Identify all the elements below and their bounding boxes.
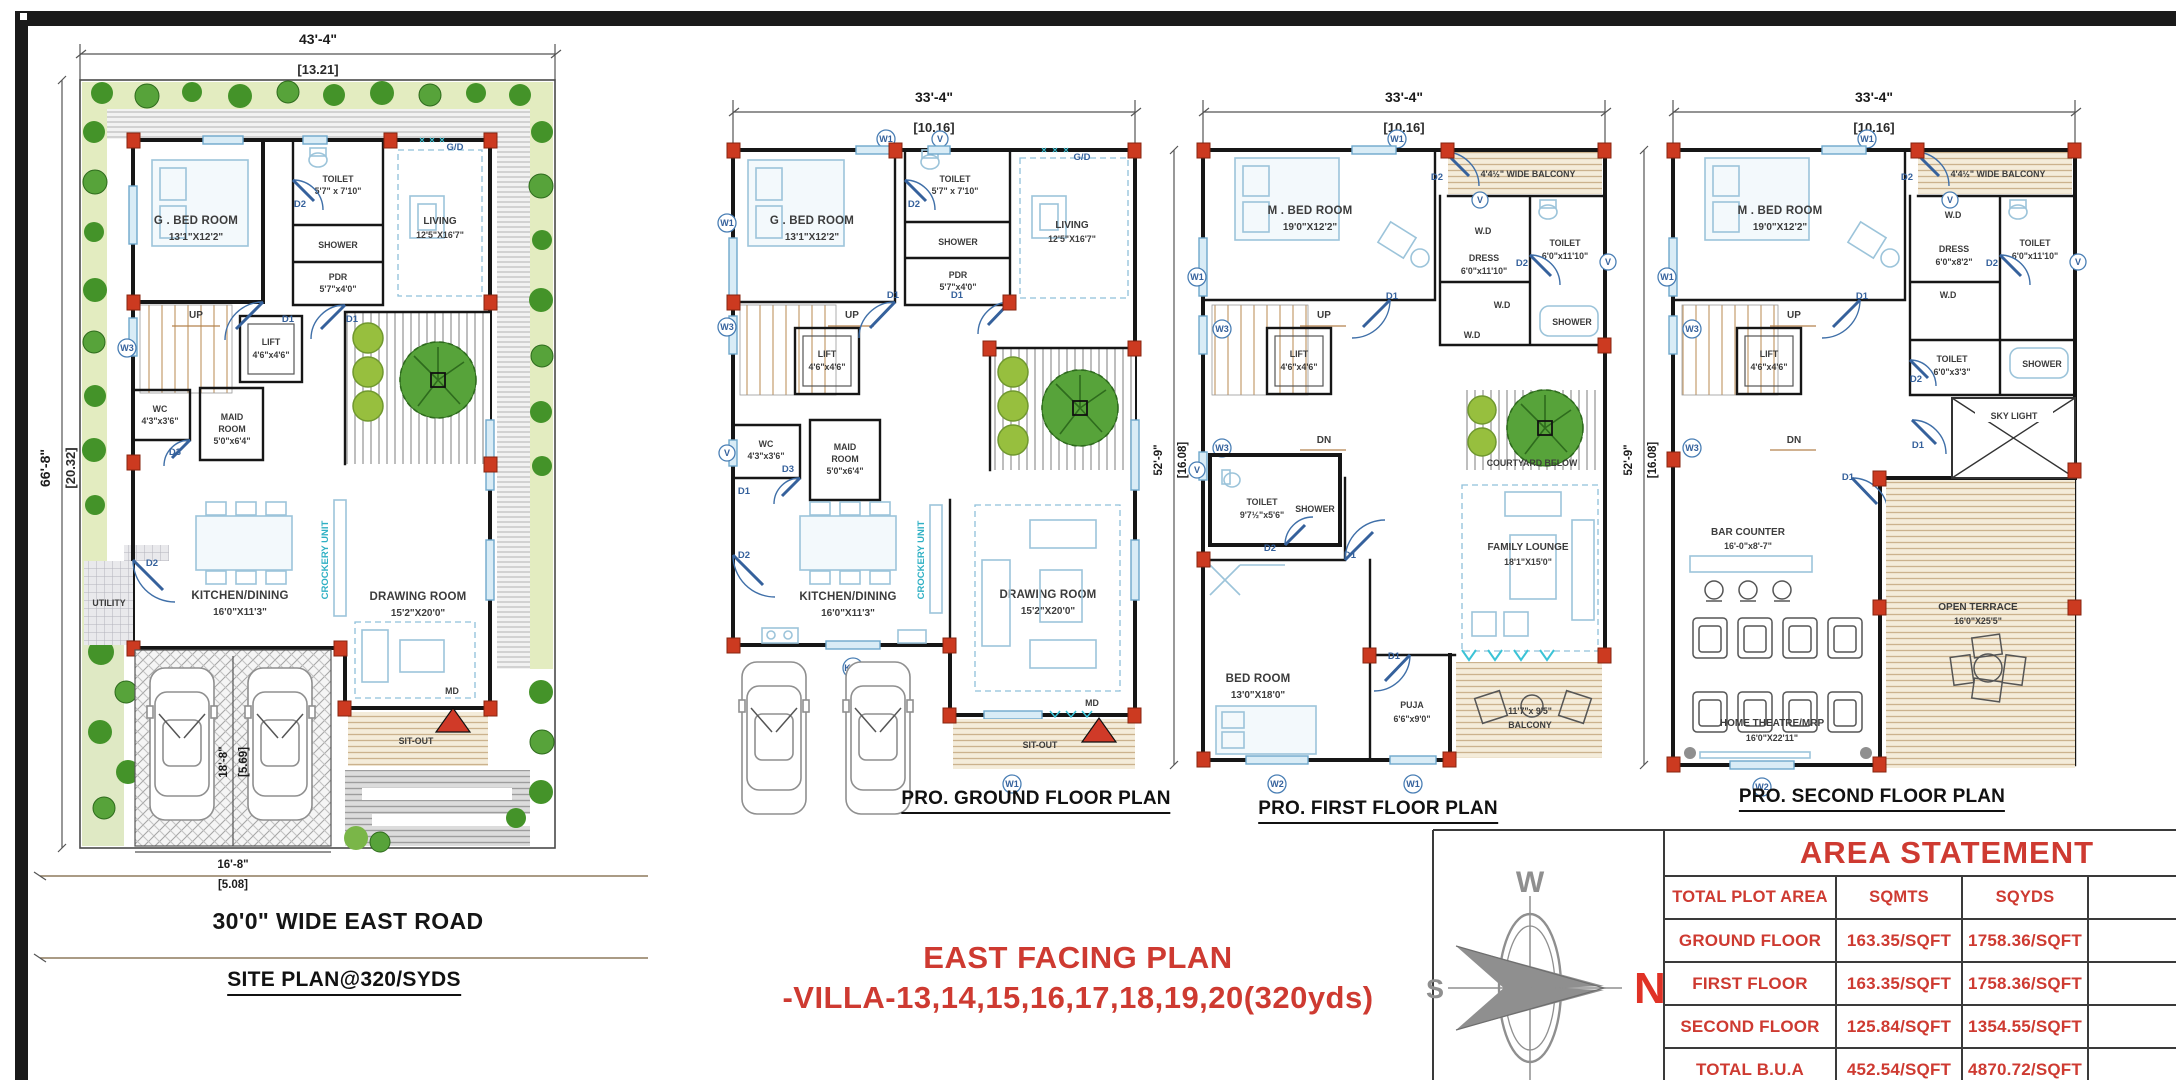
svg-text:KITCHEN/DINING: KITCHEN/DINING xyxy=(799,591,896,603)
living-size: 12'5"X16'7" xyxy=(416,230,464,240)
kitchen-label: KITCHEN/DINING xyxy=(191,590,288,602)
gbed-size: 13'1"X12'2" xyxy=(169,232,224,243)
parking-dim-hm: [5.69] xyxy=(238,747,250,777)
tag-w3: W3 xyxy=(1683,320,1701,338)
svg-text:TOILET: TOILET xyxy=(2019,238,2051,248)
theatre-label: HOME THEATRE/MRP xyxy=(1720,718,1825,729)
svg-text:W3: W3 xyxy=(120,343,134,353)
bar-counter xyxy=(1690,556,1812,572)
main-title-line2: -VILLA-13,14,15,16,17,18,19,20(320yds) xyxy=(782,978,1373,1018)
car-1 xyxy=(147,668,217,820)
tag-w3: W3 xyxy=(718,318,736,336)
svg-text:D2: D2 xyxy=(1910,374,1922,385)
area-table-title: AREA STATEMENT xyxy=(1665,831,2176,877)
svg-text:18'1"X15'0": 18'1"X15'0" xyxy=(1504,557,1552,567)
svg-text:V: V xyxy=(1477,195,1483,205)
crockery-label: CROCKERY UNIT xyxy=(320,520,331,599)
svg-text:W1: W1 xyxy=(720,218,734,228)
area-row-sqyds: 1758.36/SQFT xyxy=(1963,963,2089,1006)
svg-text:D1: D1 xyxy=(951,290,964,301)
svg-text:V: V xyxy=(2075,257,2081,267)
skylight: SKY LIGHT xyxy=(1952,398,2075,478)
svg-text:4'6"x4'6": 4'6"x4'6" xyxy=(809,362,846,372)
md-label: MD xyxy=(445,686,459,696)
area-header-sqyds: SQYDS xyxy=(1963,877,2089,920)
terrace-label: OPEN TERRACE xyxy=(1938,602,2018,613)
svg-text:[16.08]: [16.08] xyxy=(1647,442,1659,479)
ff-dim-h: 52'-9" xyxy=(1153,444,1165,475)
svg-text:LIVING: LIVING xyxy=(1055,220,1089,231)
svg-text:SIT-OUT: SIT-OUT xyxy=(1023,740,1058,750)
area-header-extra xyxy=(2089,877,2176,920)
gf-car-1 xyxy=(739,662,809,814)
area-row-sqyds: 1354.55/SQFT xyxy=(1963,1006,2089,1049)
svg-text:G/D: G/D xyxy=(1074,152,1091,163)
svg-text:4'6"x4'6": 4'6"x4'6" xyxy=(1751,362,1788,372)
svg-text:V: V xyxy=(1194,465,1200,475)
balcony1-size: 11'7"x 9'5" xyxy=(1508,706,1552,716)
svg-text:WC: WC xyxy=(759,439,774,449)
svg-text:52'-9": 52'-9" xyxy=(1623,444,1635,475)
svg-text:9'7½"x5'6": 9'7½"x5'6" xyxy=(1240,510,1284,520)
bed1-label: BED ROOM xyxy=(1226,673,1291,685)
area-row-sqyds: 1758.36/SQFT xyxy=(1963,920,2089,963)
svg-text:V: V xyxy=(1947,195,1953,205)
area-row-sqmts: 163.35/SQFT xyxy=(1837,920,1963,963)
svg-text:D2: D2 xyxy=(738,550,750,561)
area-header-sqmts: SQMTS xyxy=(1837,877,1963,920)
area-row-label: GROUND FLOOR xyxy=(1665,920,1837,963)
tag-w1: W1 xyxy=(1404,775,1422,793)
theatre-seats xyxy=(1693,618,1862,732)
svg-text:W.D: W.D xyxy=(1475,226,1492,236)
utility-label: UTILITY xyxy=(92,598,125,608)
area-row-sqmts: 125.84/SQFT xyxy=(1837,1006,1963,1049)
tag-v: V xyxy=(1189,462,1205,478)
sf-dn: DN xyxy=(1787,435,1801,446)
sf-toilet-small: TOILET xyxy=(1936,354,1968,364)
svg-text:W2: W2 xyxy=(1270,779,1284,789)
tag-w1: W1 xyxy=(1188,268,1206,286)
gf-dim-w: 33'-4" xyxy=(915,89,953,105)
maid-size: 5'0"x6'4" xyxy=(214,436,251,446)
svg-text:W3: W3 xyxy=(1685,443,1699,453)
svg-text:D1: D1 xyxy=(346,314,359,325)
svg-text:TOILET: TOILET xyxy=(939,174,971,184)
svg-text:D1: D1 xyxy=(738,486,751,497)
svg-text:6'0"x11'10": 6'0"x11'10" xyxy=(1461,266,1507,276)
living-label: LIVING xyxy=(423,216,457,227)
tag-v: V xyxy=(1600,254,1616,270)
bar-label: BAR COUNTER xyxy=(1711,527,1786,538)
site-dim-height-m: [20.32] xyxy=(63,447,78,488)
parking-dim-w: 16'-8" xyxy=(217,859,248,871)
family-label: FAMILY LOUNGE xyxy=(1487,542,1568,553)
svg-text:LIFT: LIFT xyxy=(818,349,837,359)
area-row-sqyds: 4870.72/SQFT xyxy=(1963,1049,2089,1080)
svg-text:6'6"x9'0": 6'6"x9'0" xyxy=(1394,714,1431,724)
svg-text:W.D: W.D xyxy=(1945,210,1962,220)
ff-toilet-label: TOILET xyxy=(1549,238,1581,248)
gf-up: UP xyxy=(845,310,859,321)
courtyard-tree xyxy=(400,342,476,418)
svg-text:D2: D2 xyxy=(146,558,158,569)
drawing-label: DRAWING ROOM xyxy=(370,591,467,603)
tag-v: V xyxy=(932,131,948,147)
shower-label: SHOWER xyxy=(318,240,358,250)
skylight-label: SKY LIGHT xyxy=(1991,411,2038,421)
parking-dim-wm: [5.08] xyxy=(218,879,248,891)
parking-dim-h: 18'-8" xyxy=(218,746,230,777)
ff-dim-hm: [16.08] xyxy=(1177,442,1189,479)
ff-toilet2-label: TOILET xyxy=(1246,497,1278,507)
svg-text:V: V xyxy=(937,134,943,144)
lift-size: 4'6"x4'6" xyxy=(253,350,290,360)
svg-text:W1: W1 xyxy=(1390,134,1404,144)
svg-text:D1: D1 xyxy=(282,314,295,325)
toilet-label: TOILET xyxy=(322,174,354,184)
svg-text:W1: W1 xyxy=(1860,134,1874,144)
svg-text:5'0"x6'4": 5'0"x6'4" xyxy=(827,466,864,476)
svg-text:M . BED ROOM: M . BED ROOM xyxy=(1738,205,1823,217)
first-floor-plan: 33'-4" [10.16] 52'-9" [16.08] W1 4'4½" W… xyxy=(1153,89,1616,793)
tag-w3: W3 xyxy=(118,339,136,357)
ff-dn: DN xyxy=(1317,435,1331,446)
svg-text:W.D: W.D xyxy=(1940,290,1957,300)
svg-text:CROCKERY UNIT: CROCKERY UNIT xyxy=(916,520,927,599)
wc-size: 4'3"x3'6" xyxy=(142,416,179,426)
svg-text:UP: UP xyxy=(1787,310,1801,321)
wc-label: WC xyxy=(153,404,168,414)
svg-text:D3: D3 xyxy=(782,464,794,475)
site-dim-width: 43'-4" xyxy=(299,31,337,47)
svg-text:ROOM: ROOM xyxy=(831,454,858,464)
tag-w1: W1 xyxy=(718,214,736,232)
svg-text:D2: D2 xyxy=(1264,543,1276,554)
first-floor-title: PRO. FIRST FLOOR PLAN xyxy=(1258,798,1498,824)
svg-text:W.D: W.D xyxy=(1494,300,1511,310)
svg-text:DRESS: DRESS xyxy=(1939,244,1969,254)
site-dim-width-m: [13.21] xyxy=(297,62,338,77)
maid-label: MAID xyxy=(221,412,243,422)
area-row-sqmts: 452.54/SQFT xyxy=(1837,1049,1963,1080)
svg-text:19'0"X12'2": 19'0"X12'2" xyxy=(1753,222,1808,233)
ground-floor-title: PRO. GROUND FLOOR PLAN xyxy=(901,788,1170,814)
svg-text:13'0"X18'0": 13'0"X18'0" xyxy=(1231,690,1286,701)
svg-text:SHOWER: SHOWER xyxy=(1552,317,1592,327)
svg-text:D2: D2 xyxy=(1431,172,1443,183)
svg-text:33'-4": 33'-4" xyxy=(1855,89,1893,105)
second-floor-plan: 33'-4" [10.16] 52'-9" [16.08] W1 4'4½" W… xyxy=(1623,89,2086,796)
svg-text:ROOM: ROOM xyxy=(218,424,245,434)
area-statement-table: AREA STATEMENT TOTAL PLOT AREA SQMTS SQY… xyxy=(1663,829,2176,1080)
site-dim-height: 66'-8" xyxy=(37,449,53,487)
courtyard-below-label: COURTYARD BELOW xyxy=(1487,458,1578,468)
svg-text:33'-4": 33'-4" xyxy=(1385,89,1423,105)
svg-text:G . BED ROOM: G . BED ROOM xyxy=(770,215,854,227)
svg-text:LIFT: LIFT xyxy=(1760,349,1779,359)
puja-label: PUJA xyxy=(1400,700,1424,710)
area-row-label: TOTAL B.U.A xyxy=(1665,1049,1837,1080)
family-lounge-zone xyxy=(1462,485,1598,651)
svg-text:16'0"X25'5": 16'0"X25'5" xyxy=(1954,616,2002,626)
stairs xyxy=(140,305,232,393)
svg-text:D2: D2 xyxy=(1986,258,1998,269)
car-2 xyxy=(245,668,315,820)
main-title: EAST FACING PLAN -VILLA-13,14,15,16,17,1… xyxy=(782,938,1373,1018)
svg-text:16'0"X11'3": 16'0"X11'3" xyxy=(821,608,875,619)
svg-text:V: V xyxy=(1605,257,1611,267)
compass-n: N xyxy=(1634,964,1666,1013)
area-row-label: FIRST FLOOR xyxy=(1665,963,1837,1006)
up-label: UP xyxy=(189,310,203,321)
svg-text:SHOWER: SHOWER xyxy=(2022,359,2062,369)
tag-w1: W1 xyxy=(1658,268,1676,286)
svg-text:19'0"X12'2": 19'0"X12'2" xyxy=(1283,222,1338,233)
svg-text:D2: D2 xyxy=(294,199,306,210)
drawing-size: 15'2"X20'0" xyxy=(391,608,446,619)
tag-w2: W2 xyxy=(1268,775,1286,793)
pdr-size: 5'7"x4'0" xyxy=(320,284,357,294)
svg-text:6'0"x8'2": 6'0"x8'2" xyxy=(1936,257,1973,267)
svg-text:15'2"X20'0": 15'2"X20'0" xyxy=(1021,606,1076,617)
svg-text:13'1"X12'2": 13'1"X12'2" xyxy=(785,232,840,243)
svg-text:MAID: MAID xyxy=(834,442,856,452)
tag-v: V xyxy=(1472,192,1488,208)
road-label: 30'0" WIDE EAST ROAD xyxy=(212,908,483,935)
dress-label: DRESS xyxy=(1469,253,1499,263)
drawing-sheet: 43'-4" [13.21] 66'-8" [20.32] xyxy=(0,0,2176,1080)
svg-text:W3: W3 xyxy=(1215,443,1229,453)
svg-text:W3: W3 xyxy=(1685,324,1699,334)
site-plan-title: SITE PLAN@320/SYDS xyxy=(227,968,461,996)
svg-text:V: V xyxy=(724,448,730,458)
svg-text:12'5"X16'7": 12'5"X16'7" xyxy=(1048,234,1096,244)
svg-text:D1: D1 xyxy=(1388,651,1401,662)
svg-text:4'6"x4'6": 4'6"x4'6" xyxy=(1281,362,1318,372)
svg-text:6'0"x3'3": 6'0"x3'3" xyxy=(1934,367,1971,377)
tag-v: V xyxy=(2070,254,2086,270)
balcony1-label: BALCONY xyxy=(1508,720,1552,730)
main-title-line1: EAST FACING PLAN xyxy=(782,938,1373,978)
area-header-plot: TOTAL PLOT AREA xyxy=(1665,877,1837,920)
svg-text:MD: MD xyxy=(1085,698,1099,708)
svg-text:4'3"x3'6": 4'3"x3'6" xyxy=(748,451,785,461)
svg-text:6'0"x11'10": 6'0"x11'10" xyxy=(2012,251,2058,261)
kitchen-size: 16'0"X11'3" xyxy=(213,607,267,618)
svg-text:D2: D2 xyxy=(1901,172,1913,183)
svg-text:16'-0"x8'-7": 16'-0"x8'-7" xyxy=(1724,541,1772,551)
tag-w3: W3 xyxy=(1213,320,1231,338)
tag-v: V xyxy=(1942,192,1958,208)
pdr-label: PDR xyxy=(329,272,348,282)
lift-label: LIFT xyxy=(262,337,281,347)
svg-text:W1: W1 xyxy=(1190,272,1204,282)
gbed-label: G . BED ROOM xyxy=(154,215,238,227)
svg-text:D1: D1 xyxy=(1912,440,1925,451)
svg-text:6'0"x11'10": 6'0"x11'10" xyxy=(1542,251,1588,261)
toilet-size: 5'7" x 7'10" xyxy=(315,186,362,196)
svg-text:W1: W1 xyxy=(1406,779,1420,789)
svg-text:D2: D2 xyxy=(1516,258,1528,269)
svg-text:5'7" x 7'10": 5'7" x 7'10" xyxy=(932,186,979,196)
dining-table xyxy=(196,516,292,570)
svg-text:UP: UP xyxy=(1317,310,1331,321)
svg-text:W3: W3 xyxy=(720,322,734,332)
svg-text:D1: D1 xyxy=(887,290,900,301)
svg-text:W3: W3 xyxy=(1215,324,1229,334)
svg-text:SHOWER: SHOWER xyxy=(938,237,978,247)
svg-text:D3: D3 xyxy=(169,447,181,458)
second-floor-title: PRO. SECOND FLOOR PLAN xyxy=(1739,786,2005,812)
gf-dim-wm: [10.16] xyxy=(913,120,954,135)
ground-floor-plan: 33'-4" [10.16] W1 V UP LIFT 4'6"x4'6" WC… xyxy=(718,89,1141,814)
svg-text:16'0"X22'11": 16'0"X22'11" xyxy=(1746,733,1798,743)
area-row-label: SECOND FLOOR xyxy=(1665,1006,1837,1049)
svg-text:W.D: W.D xyxy=(1464,330,1481,340)
compass-w: W xyxy=(1516,866,1545,899)
svg-text:LIFT: LIFT xyxy=(1290,349,1309,359)
gd-label: G/D xyxy=(447,142,464,153)
svg-text:D2: D2 xyxy=(908,199,920,210)
tag-w3: W3 xyxy=(1683,439,1701,457)
svg-text:4'4½" WIDE BALCONY: 4'4½" WIDE BALCONY xyxy=(1951,169,2046,179)
area-row-sqmts: 163.35/SQFT xyxy=(1837,963,1963,1006)
compass-s: S xyxy=(1426,974,1444,1004)
svg-text:W1: W1 xyxy=(1660,272,1674,282)
tag-v: V xyxy=(719,445,735,461)
site-plan: 43'-4" [13.21] 66'-8" [20.32] xyxy=(34,31,648,962)
mbed-label: M . BED ROOM xyxy=(1268,205,1353,217)
svg-text:PDR: PDR xyxy=(949,270,968,280)
sitout-label: SIT-OUT xyxy=(399,736,434,746)
balcony-top-label: 4'4½" WIDE BALCONY xyxy=(1481,169,1576,179)
svg-text:SHOWER: SHOWER xyxy=(1295,504,1335,514)
